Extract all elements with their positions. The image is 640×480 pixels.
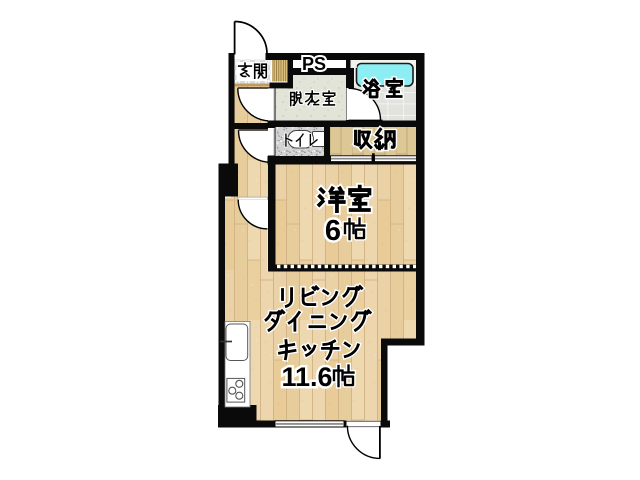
svg-text:11.6: 11.6 [281, 362, 332, 392]
svg-text:6: 6 [325, 215, 341, 247]
svg-text:PS: PS [302, 54, 326, 74]
